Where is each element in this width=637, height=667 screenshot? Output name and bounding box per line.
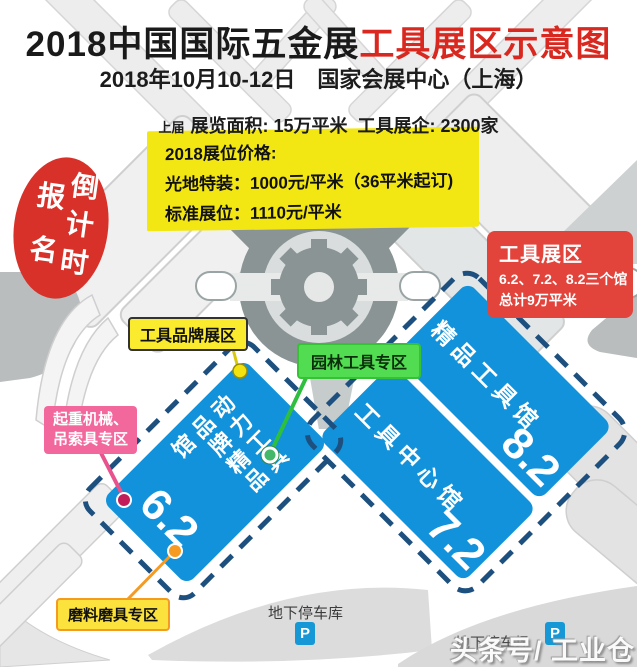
page-title-black: 2018中国国际五金展: [26, 25, 360, 64]
tool-zone-area-line: 总计9万平米: [499, 292, 623, 309]
page-title: 2018中国国际五金展工具展区示意图: [0, 16, 637, 67]
tool-zone-halls-line: 6.2、7.2、8.2三个馆: [499, 271, 623, 288]
callout-dots: [117, 364, 279, 558]
callout-garden-tool-zone: 园林工具专区: [297, 343, 421, 379]
callout-pointer-lines: [100, 349, 306, 599]
abrasives-pointer-line: [128, 553, 173, 599]
callout-lifting-line2: 吊索具专区: [53, 430, 128, 450]
tool-brand-dot: [233, 364, 247, 378]
callout-lifting-zone: 起重机械、 吊索具专区: [44, 406, 137, 454]
tool-zone-title: 工具展区: [499, 238, 623, 267]
tool-zone-summary-box: 工具展区 6.2、7.2、8.2三个馆 总计9万平米: [487, 231, 633, 318]
watermark-text: 头条号/ 工业仓: [450, 629, 635, 667]
callout-tool-brand-zone: 工具品牌展区: [128, 317, 248, 351]
previous-edition-values: 展览面积: 15万平米 工具展企: 2300家: [190, 116, 498, 136]
price-raw-space: 光地特装：1000元/平米（36平米起订): [165, 166, 479, 200]
garden-pointer-line: [271, 378, 306, 452]
previous-edition-stats: 上届展览面积: 15万平米 工具展企: 2300家: [0, 91, 637, 159]
callout-abrasives-zone: 磨料磨具专区: [56, 598, 170, 631]
page-title-red: 工具展区示意图: [359, 25, 611, 64]
lifting-dot: [117, 493, 131, 507]
callout-lifting-line1: 起重机械、: [53, 410, 128, 430]
abrasives-dot: [168, 544, 182, 558]
previous-edition-label: 上届: [158, 120, 184, 135]
garden-dot: [265, 450, 276, 461]
event-date-venue: 2018年10月10-12日 国家会展中心（上海）: [0, 62, 637, 94]
exhibition-map-poster: 动力工具品牌精品馆 6.2 工具中心馆 7.2 精品工具馆 8.2 201: [0, 0, 637, 667]
price-standard-booth: 标准展位：1110元/平米: [165, 196, 479, 230]
